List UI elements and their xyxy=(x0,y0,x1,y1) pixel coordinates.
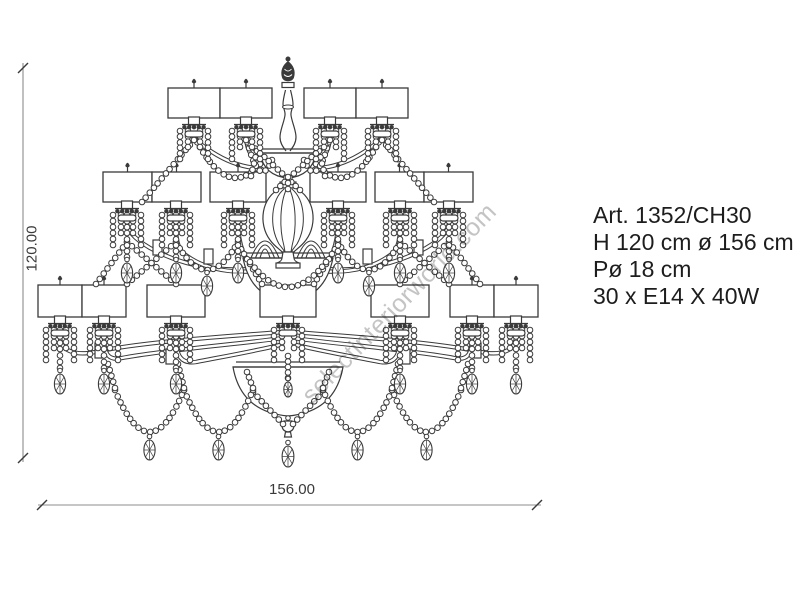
width-dimension-label: 156.00 xyxy=(252,481,332,498)
height-dimension-label: 120.00 xyxy=(24,204,41,294)
spec-size: H 120 cm ø 156 cm xyxy=(593,229,794,256)
product-specs: Art. 1352/CH30 H 120 cm ø 156 cm Pø 18 c… xyxy=(593,202,794,310)
spec-shade-diameter: Pø 18 cm xyxy=(593,256,794,283)
technical-drawing-page: selectinteriorworld.com 120.00 156.00 Ar… xyxy=(0,0,800,595)
spec-bulbs: 30 x E14 X 40W xyxy=(593,283,794,310)
spec-article-number: Art. 1352/CH30 xyxy=(593,202,794,229)
